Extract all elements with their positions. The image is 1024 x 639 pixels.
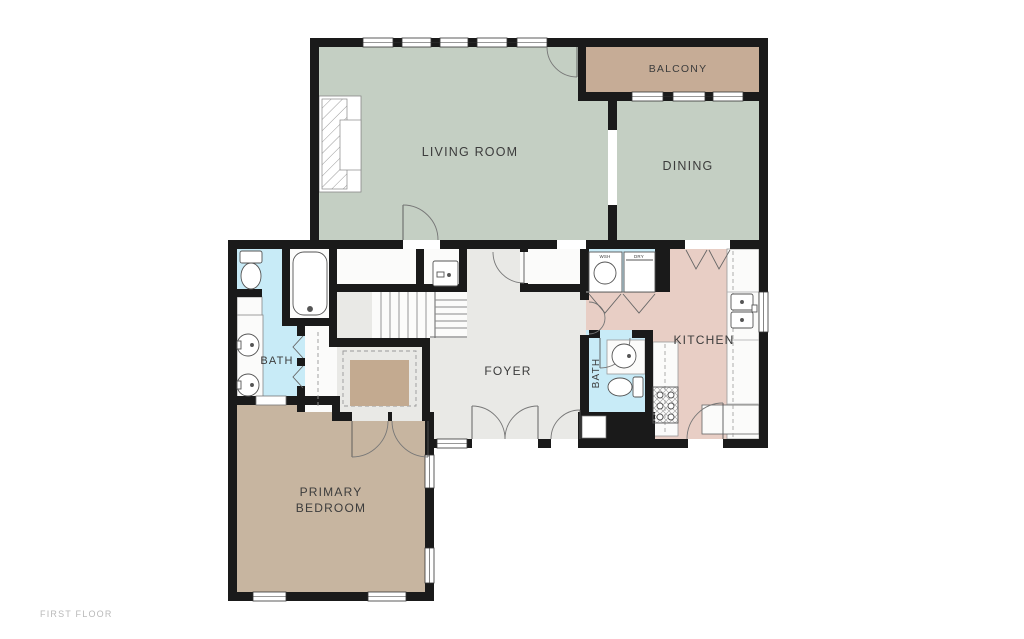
stove — [653, 387, 678, 423]
closet-a-floor — [337, 249, 416, 284]
floor-title: FIRST FLOOR — [40, 609, 113, 619]
floor-plan: LIVING ROOM DINING BALCONY KITCHEN FOYER… — [0, 0, 1024, 639]
bath-opening — [256, 396, 286, 405]
dining-windows — [632, 92, 743, 101]
dryer-label: DRY — [634, 254, 644, 259]
primary-bath-label: BATH — [260, 355, 293, 367]
kitchen-label: KITCHEN — [673, 333, 734, 347]
washer-label: WSH — [599, 254, 610, 259]
dining-label: DINING — [663, 159, 714, 173]
floor-plan-page: LIVING ROOM DINING BALCONY KITCHEN FOYER… — [0, 0, 1024, 639]
toilet — [240, 251, 262, 289]
living-windows — [363, 38, 547, 47]
closet-rug — [350, 360, 409, 406]
primary-bedroom-label-line2: BEDROOM — [296, 501, 366, 515]
foyer-label: FOYER — [484, 364, 531, 378]
fireplace — [319, 96, 361, 192]
refrigerator — [702, 405, 759, 434]
balcony-label: BALCONY — [649, 63, 708, 75]
powder-bath-label: BATH — [591, 358, 602, 389]
living-room-floor — [319, 47, 608, 240]
powder-sink — [612, 344, 636, 368]
bathtub — [293, 252, 327, 315]
living-room-label: LIVING ROOM — [422, 145, 519, 159]
primary-bedroom-label-line1: PRIMARY — [300, 485, 363, 499]
utility-cabinet — [433, 261, 458, 286]
powder-toilet — [608, 377, 643, 397]
entry-stoop — [582, 416, 606, 438]
stairs-floor — [372, 292, 467, 338]
